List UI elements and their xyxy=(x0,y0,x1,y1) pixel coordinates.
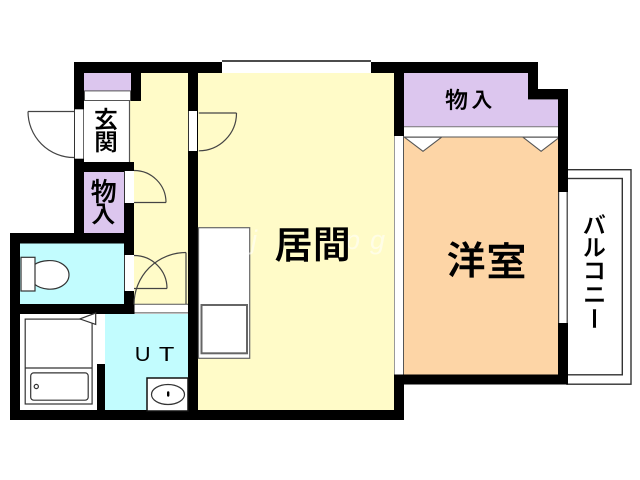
svg-text:g: g xyxy=(370,225,385,255)
svg-text:U: U xyxy=(135,343,151,366)
svg-text:T: T xyxy=(159,343,175,366)
